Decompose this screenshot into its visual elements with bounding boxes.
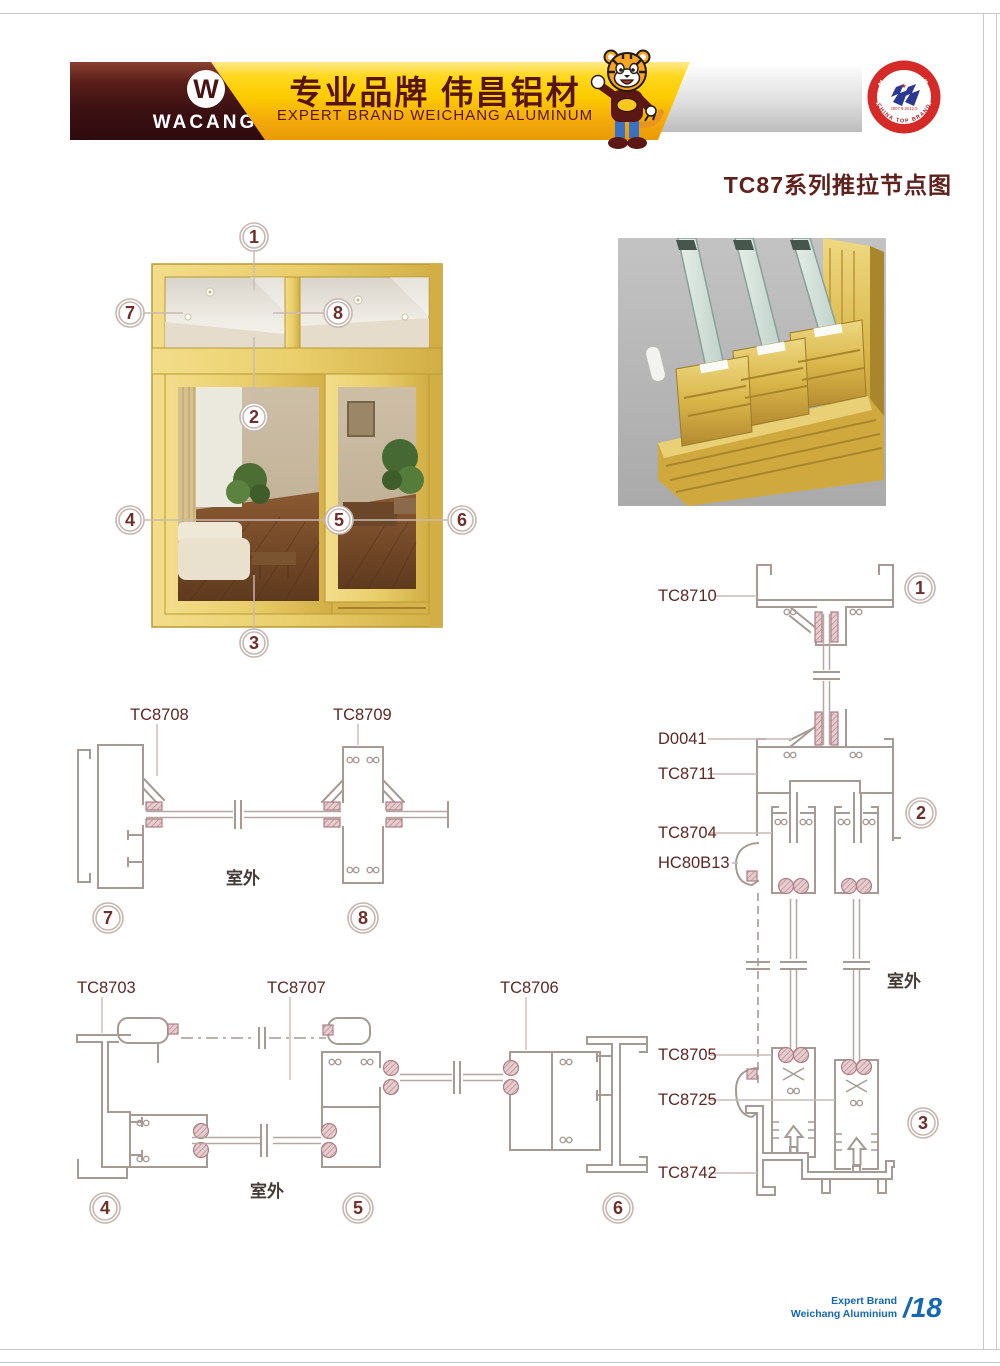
bottom-rule-outer bbox=[0, 1362, 1000, 1363]
honors-band: 中国驰名商标 中国名牌产品 bbox=[658, 67, 862, 132]
callout-3: 3 bbox=[240, 629, 268, 657]
section-456-drawing: TC8703 TC8707 TC8706 室外 4 5 6 bbox=[40, 960, 660, 1240]
tiger-mascot-icon bbox=[577, 46, 677, 152]
badge-years: 2007.9-2012.9 bbox=[890, 106, 918, 111]
label-tc8742: TC8742 bbox=[658, 1164, 717, 1182]
svg-text:4: 4 bbox=[125, 510, 135, 530]
footer-brand-line1: Expert Brand bbox=[791, 1295, 897, 1308]
outdoor-label: 室外 bbox=[226, 868, 260, 888]
callout-2: 2 bbox=[240, 403, 268, 431]
callout-6d: 6 bbox=[603, 1193, 633, 1223]
top-rule bbox=[0, 13, 1000, 14]
svg-text:2: 2 bbox=[916, 803, 926, 823]
svg-text:5: 5 bbox=[353, 1198, 363, 1218]
svg-text:2: 2 bbox=[249, 407, 259, 427]
bottom-rule-inner bbox=[0, 1349, 1000, 1350]
section-78-drawing: TC8708 TC8709 室外 7 8 bbox=[50, 690, 470, 940]
label-tc8709: TC8709 bbox=[333, 706, 392, 724]
profile-sash-top-left bbox=[772, 807, 815, 894]
label-d0041: D0041 bbox=[658, 730, 707, 748]
right-rule-outer bbox=[996, 13, 997, 1349]
svg-text:3: 3 bbox=[249, 633, 259, 653]
badge-center-star: ★ bbox=[901, 83, 906, 90]
svg-text:7: 7 bbox=[125, 303, 135, 323]
page-number: /18 bbox=[903, 1292, 942, 1324]
svg-text:8: 8 bbox=[358, 908, 368, 928]
callout-4d: 4 bbox=[90, 1193, 120, 1223]
outdoor-label: 室外 bbox=[887, 971, 921, 991]
profile-slide-jamb-left bbox=[77, 1035, 142, 1178]
svg-text:1: 1 bbox=[249, 227, 259, 247]
label-tc8707: TC8707 bbox=[267, 979, 326, 997]
label-tc8706: TC8706 bbox=[500, 979, 559, 997]
svg-text:8: 8 bbox=[333, 303, 343, 323]
callout-8d: 8 bbox=[348, 903, 378, 933]
label-tc8708: TC8708 bbox=[130, 706, 189, 724]
callout-1: 1 bbox=[240, 223, 268, 251]
banner-subtitle: EXPERT BRAND WEICHANG ALUMINUM bbox=[250, 107, 620, 124]
window-illustration: 1 2 3 4 5 6 7 8 bbox=[100, 222, 480, 662]
label-tc8710: TC8710 bbox=[658, 587, 717, 605]
callout-8: 8 bbox=[324, 299, 352, 327]
svg-text:5: 5 bbox=[334, 510, 344, 530]
right-sash bbox=[325, 374, 429, 602]
svg-text:7: 7 bbox=[103, 908, 113, 928]
label-tc8704: TC8704 bbox=[658, 824, 717, 842]
page-title: TC87系列推拉节点图 bbox=[724, 166, 952, 200]
svg-text:6: 6 bbox=[457, 510, 467, 530]
profile-handle-hook-upper bbox=[736, 843, 758, 885]
profile-slide-jamb-right bbox=[587, 1037, 647, 1172]
outdoor-label: 室外 bbox=[250, 1181, 284, 1201]
catalog-page: 中国驰名商标 中国名牌产品 专业品牌 伟昌铝材 EXPERT BRAND WEI… bbox=[0, 0, 1000, 1366]
callout-6: 6 bbox=[448, 506, 476, 534]
label-tc8705: TC8705 bbox=[658, 1046, 717, 1064]
label-tc8725: TC8725 bbox=[658, 1091, 717, 1109]
footer-brand: Expert Brand Weichang Aluminium bbox=[791, 1295, 897, 1321]
profile-antilift-hooks bbox=[118, 1018, 370, 1062]
profile-sash-box-right bbox=[504, 1052, 601, 1150]
page-footer: Expert Brand Weichang Aluminium /18 bbox=[791, 1292, 942, 1324]
label-hc80b13: HC80B13 bbox=[658, 854, 730, 872]
callout-5: 5 bbox=[325, 506, 353, 534]
profile-fixed-jamb bbox=[78, 745, 164, 888]
vertical-section-drawing: TC8710 D0041 TC8711 TC8704 HC80B13 TC870… bbox=[640, 550, 980, 1230]
profile-head-frame bbox=[757, 565, 893, 645]
callout-v3: 3 bbox=[908, 1108, 938, 1138]
callout-7d: 7 bbox=[93, 903, 123, 933]
profile-sash-top-right bbox=[835, 807, 878, 894]
callout-4: 4 bbox=[116, 506, 144, 534]
callout-v1: 1 bbox=[905, 573, 935, 603]
profile-meeting-stile bbox=[322, 1052, 399, 1167]
callout-5d: 5 bbox=[343, 1193, 373, 1223]
profile-fixed-mullion bbox=[322, 747, 404, 883]
profile-glazing-wedge bbox=[790, 710, 846, 747]
china-top-brand-badge: 中国名牌 ★ ★ CHINA TOP BRAND ★ 2007.9-2012.9 bbox=[864, 57, 944, 137]
profile-3d-render bbox=[618, 238, 886, 506]
profile-sash-bottom-left bbox=[772, 1048, 815, 1158]
profile-sash-bottom-right bbox=[835, 1060, 878, 1170]
section-labels: TC8708 TC8709 室外 bbox=[130, 706, 392, 888]
right-rule-inner bbox=[983, 13, 984, 1349]
svg-text:4: 4 bbox=[100, 1198, 110, 1218]
svg-text:3: 3 bbox=[918, 1113, 928, 1133]
footer-brand-line2: Weichang Aluminium bbox=[791, 1308, 897, 1321]
svg-text:1: 1 bbox=[915, 578, 925, 598]
svg-text:6: 6 bbox=[613, 1198, 623, 1218]
label-tc8711: TC8711 bbox=[658, 765, 715, 783]
wacang-logo-icon: W bbox=[187, 70, 225, 108]
callout-v2: 2 bbox=[906, 798, 936, 828]
callout-7: 7 bbox=[116, 299, 144, 327]
label-tc8703: TC8703 bbox=[77, 979, 136, 997]
